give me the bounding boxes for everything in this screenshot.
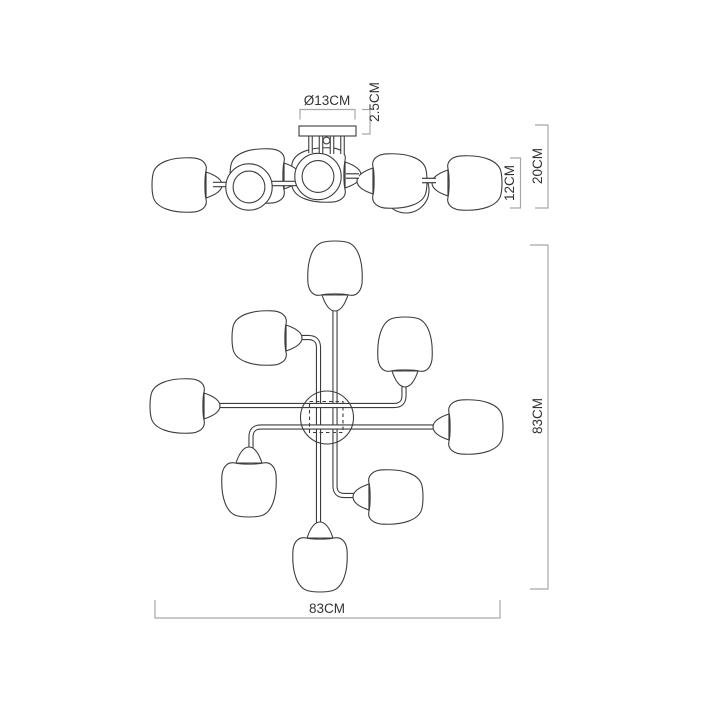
plan-height-label: 83CM [530, 398, 545, 434]
plan-view: 83CM 83CM [150, 241, 548, 618]
shade-plan-right [433, 400, 503, 455]
dim-plan-width: 83CM [155, 600, 500, 618]
shade-plan-bottom [293, 522, 348, 592]
diameter-label: Ø13CM [304, 93, 351, 108]
dim-shade-height: 12CM [502, 158, 521, 208]
shade-height-label: 12CM [502, 165, 517, 201]
shade-side-far-right [432, 156, 502, 211]
drawing-canvas: Ø13CM 2.5CM 12CM 20CM [0, 0, 715, 715]
shade-plan-left [150, 379, 220, 434]
mount-screw [323, 137, 330, 144]
technical-drawing: Ø13CM 2.5CM 12CM 20CM [0, 0, 715, 715]
shade-side-ring-center [295, 153, 341, 199]
shade-side-ring-left [226, 164, 272, 210]
plan-width-label: 83CM [309, 601, 345, 616]
total-height-label: 20CM [530, 148, 545, 184]
shade-side-mid-right [357, 154, 427, 209]
dim-diameter: Ø13CM [300, 93, 355, 120]
shade-side-far-left [152, 158, 222, 213]
shade-plan-upper-left [232, 311, 302, 366]
plate-height-label: 2.5CM [367, 82, 382, 122]
shade-plan-lower-left [222, 447, 277, 517]
shade-plan-lower-right [353, 470, 423, 525]
shade-plan-top [308, 241, 363, 311]
dim-plate-height: 2.5CM [362, 82, 382, 134]
side-view: Ø13CM 2.5CM 12CM 20CM [152, 82, 548, 213]
canopy-circle [301, 391, 354, 444]
dim-plan-height: 83CM [530, 245, 548, 589]
dim-total-height: 20CM [530, 125, 548, 208]
shade-plan-upper-right [378, 317, 433, 387]
ceiling-plate [299, 126, 356, 136]
